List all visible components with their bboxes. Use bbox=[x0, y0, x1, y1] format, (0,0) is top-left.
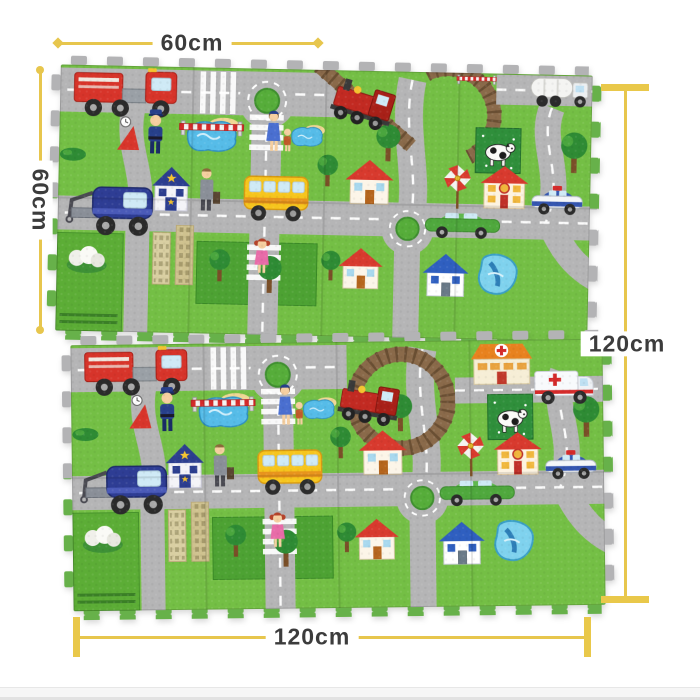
dimension-label-right: 120cm bbox=[581, 331, 674, 356]
cap-top bbox=[601, 84, 649, 91]
dimension-label-bottom: 120cm bbox=[266, 624, 359, 649]
cap-bottom bbox=[601, 596, 649, 603]
dimension-label-top: 60cm bbox=[153, 30, 232, 55]
cap-right bbox=[584, 617, 591, 657]
cap-left bbox=[73, 617, 80, 657]
dimension-label-left: 60cm bbox=[27, 161, 52, 240]
play-mat-top bbox=[43, 52, 605, 354]
play-mat-bottom bbox=[58, 327, 618, 624]
arrowhead-left-icon bbox=[52, 37, 63, 48]
product-photo: 60cm 60cm 120cm 120cm bbox=[0, 0, 700, 700]
table-edge bbox=[0, 687, 700, 700]
arrowhead-bottom-icon bbox=[36, 326, 44, 334]
arrowhead-top-icon bbox=[36, 66, 44, 74]
arrowhead-right-icon bbox=[312, 37, 323, 48]
